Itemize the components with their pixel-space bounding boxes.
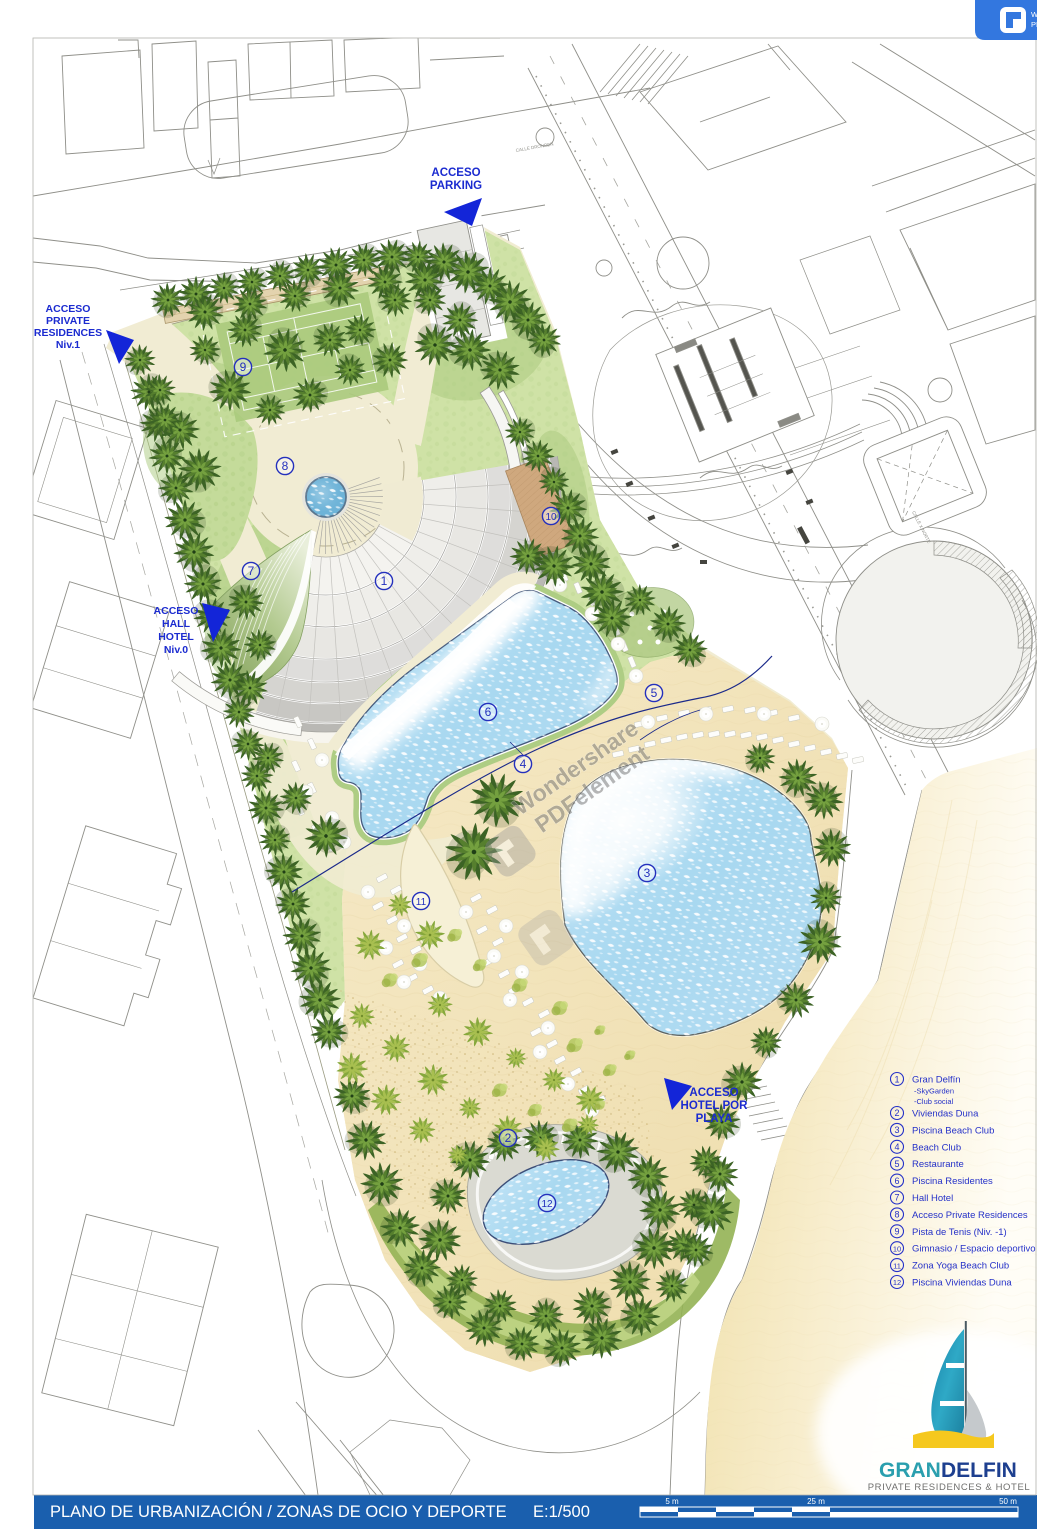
svg-text:1: 1 [894,1075,899,1085]
svg-text:PDFelement: PDFelement [1031,20,1037,29]
svg-text:Piscina Beach Club: Piscina Beach Club [912,1125,994,1136]
svg-text:9: 9 [894,1227,899,1237]
svg-text:11: 11 [893,1261,901,1270]
svg-text:5 m: 5 m [665,1497,679,1506]
svg-text:9: 9 [240,360,247,374]
svg-text:7: 7 [248,564,255,578]
svg-text:HALL: HALL [162,618,191,630]
svg-text:Beach Club: Beach Club [912,1142,961,1153]
svg-text:8: 8 [282,459,289,473]
svg-text:Zona Yoga Beach Club: Zona Yoga Beach Club [912,1261,1009,1272]
svg-text:4: 4 [894,1142,899,1152]
svg-text:PRIVATE: PRIVATE [46,315,90,327]
svg-text:ACCESO: ACCESO [431,167,480,179]
svg-text:8: 8 [894,1210,899,1220]
svg-text:2: 2 [505,1131,512,1145]
svg-text:Gran Delfín: Gran Delfín [912,1075,961,1086]
svg-text:12: 12 [541,1199,553,1210]
svg-text:3: 3 [644,866,651,880]
svg-text:RESIDENCES: RESIDENCES [34,327,102,339]
svg-text:ACCESO: ACCESO [154,605,199,617]
svg-text:-Club social: -Club social [914,1097,954,1106]
svg-text:GRAN: GRAN [879,1459,941,1482]
svg-text:DELFIN: DELFIN [941,1459,1017,1482]
svg-text:1: 1 [381,574,388,588]
svg-text:6: 6 [485,705,492,719]
svg-text:Restaurante: Restaurante [912,1159,964,1170]
svg-text:11: 11 [416,897,427,908]
svg-text:Pista de Tenis (Niv. -1): Pista de Tenis (Niv. -1) [912,1227,1007,1238]
svg-text:ACCESO: ACCESO [46,303,91,315]
svg-text:6: 6 [894,1176,899,1186]
svg-text:4: 4 [520,757,527,771]
svg-text:Acceso Private Residences: Acceso Private Residences [912,1210,1028,1221]
svg-text:-SkyGarden: -SkyGarden [914,1087,954,1096]
svg-text:7: 7 [894,1193,899,1203]
svg-text:12: 12 [893,1278,901,1287]
svg-text:3: 3 [894,1125,899,1135]
svg-text:ACCESO: ACCESO [689,1087,738,1099]
svg-text:25 m: 25 m [807,1497,825,1506]
svg-text:2: 2 [894,1108,899,1118]
svg-text:Niv.1: Niv.1 [56,339,80,351]
svg-text:Wondershare: Wondershare [1031,10,1037,19]
svg-text:5: 5 [651,686,658,700]
svg-text:PLAYA: PLAYA [696,1113,733,1125]
svg-text:Viviendas Duna: Viviendas Duna [912,1109,979,1120]
svg-text:10: 10 [545,512,557,523]
svg-text:10: 10 [893,1244,901,1253]
svg-text:PARKING: PARKING [430,180,482,192]
svg-text:50 m: 50 m [999,1497,1017,1506]
svg-text:HOTEL: HOTEL [158,631,194,643]
svg-text:Piscina Residentes: Piscina Residentes [912,1176,993,1187]
svg-text:Piscina Viviendas Duna: Piscina Viviendas Duna [912,1278,1012,1289]
svg-text:HOTEL POR: HOTEL POR [681,1100,749,1112]
svg-text:5: 5 [894,1159,899,1169]
svg-text:PLANO DE URBANIZACIÓN / ZONAS: PLANO DE URBANIZACIÓN / ZONAS DE OCIO Y … [50,1502,507,1521]
svg-text:E:1/500: E:1/500 [533,1503,590,1521]
svg-text:PRIVATE RESIDENCES & HOTEL: PRIVATE RESIDENCES & HOTEL [868,1482,1031,1493]
svg-text:Hall Hotel: Hall Hotel [912,1193,953,1204]
svg-text:Gimnasio / Espacio deportivo: Gimnasio / Espacio deportivo [912,1244,1036,1255]
svg-text:Niv.0: Niv.0 [164,644,188,656]
